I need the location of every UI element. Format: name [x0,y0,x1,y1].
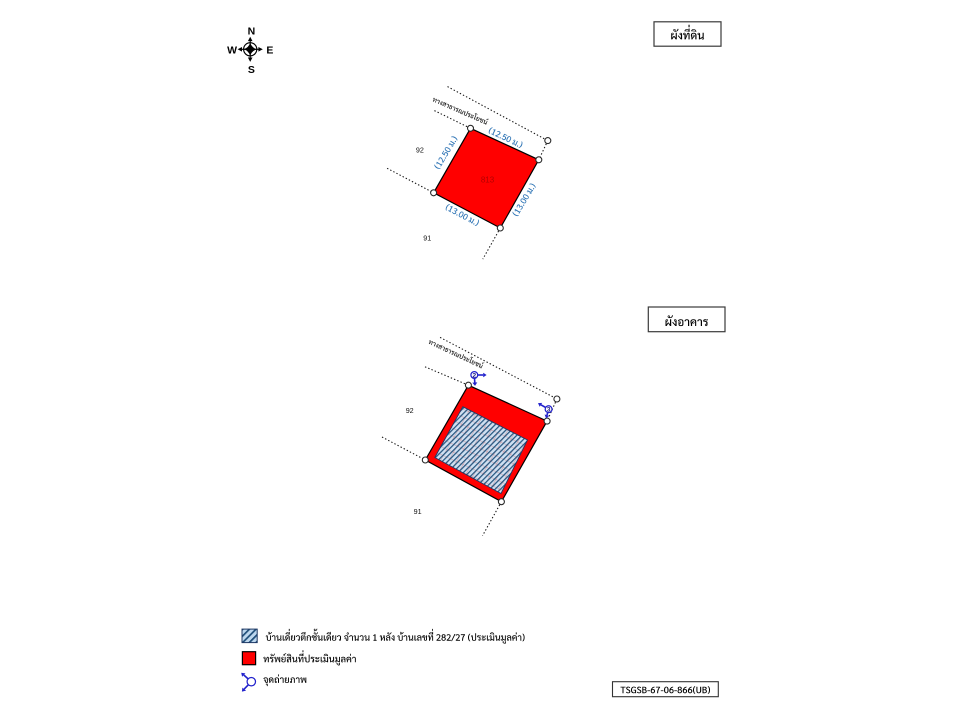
svg-text:91: 91 [423,234,431,243]
svg-text:E: E [266,44,273,56]
svg-text:92: 92 [416,146,424,155]
svg-text:3: 3 [547,407,551,414]
svg-text:91: 91 [414,507,422,516]
svg-text:W: W [227,44,237,56]
svg-text:N: N [248,26,256,38]
svg-text:2: 2 [472,372,476,379]
svg-text:S: S [248,64,255,76]
svg-text:813: 813 [481,176,495,185]
svg-text:92: 92 [406,406,414,415]
